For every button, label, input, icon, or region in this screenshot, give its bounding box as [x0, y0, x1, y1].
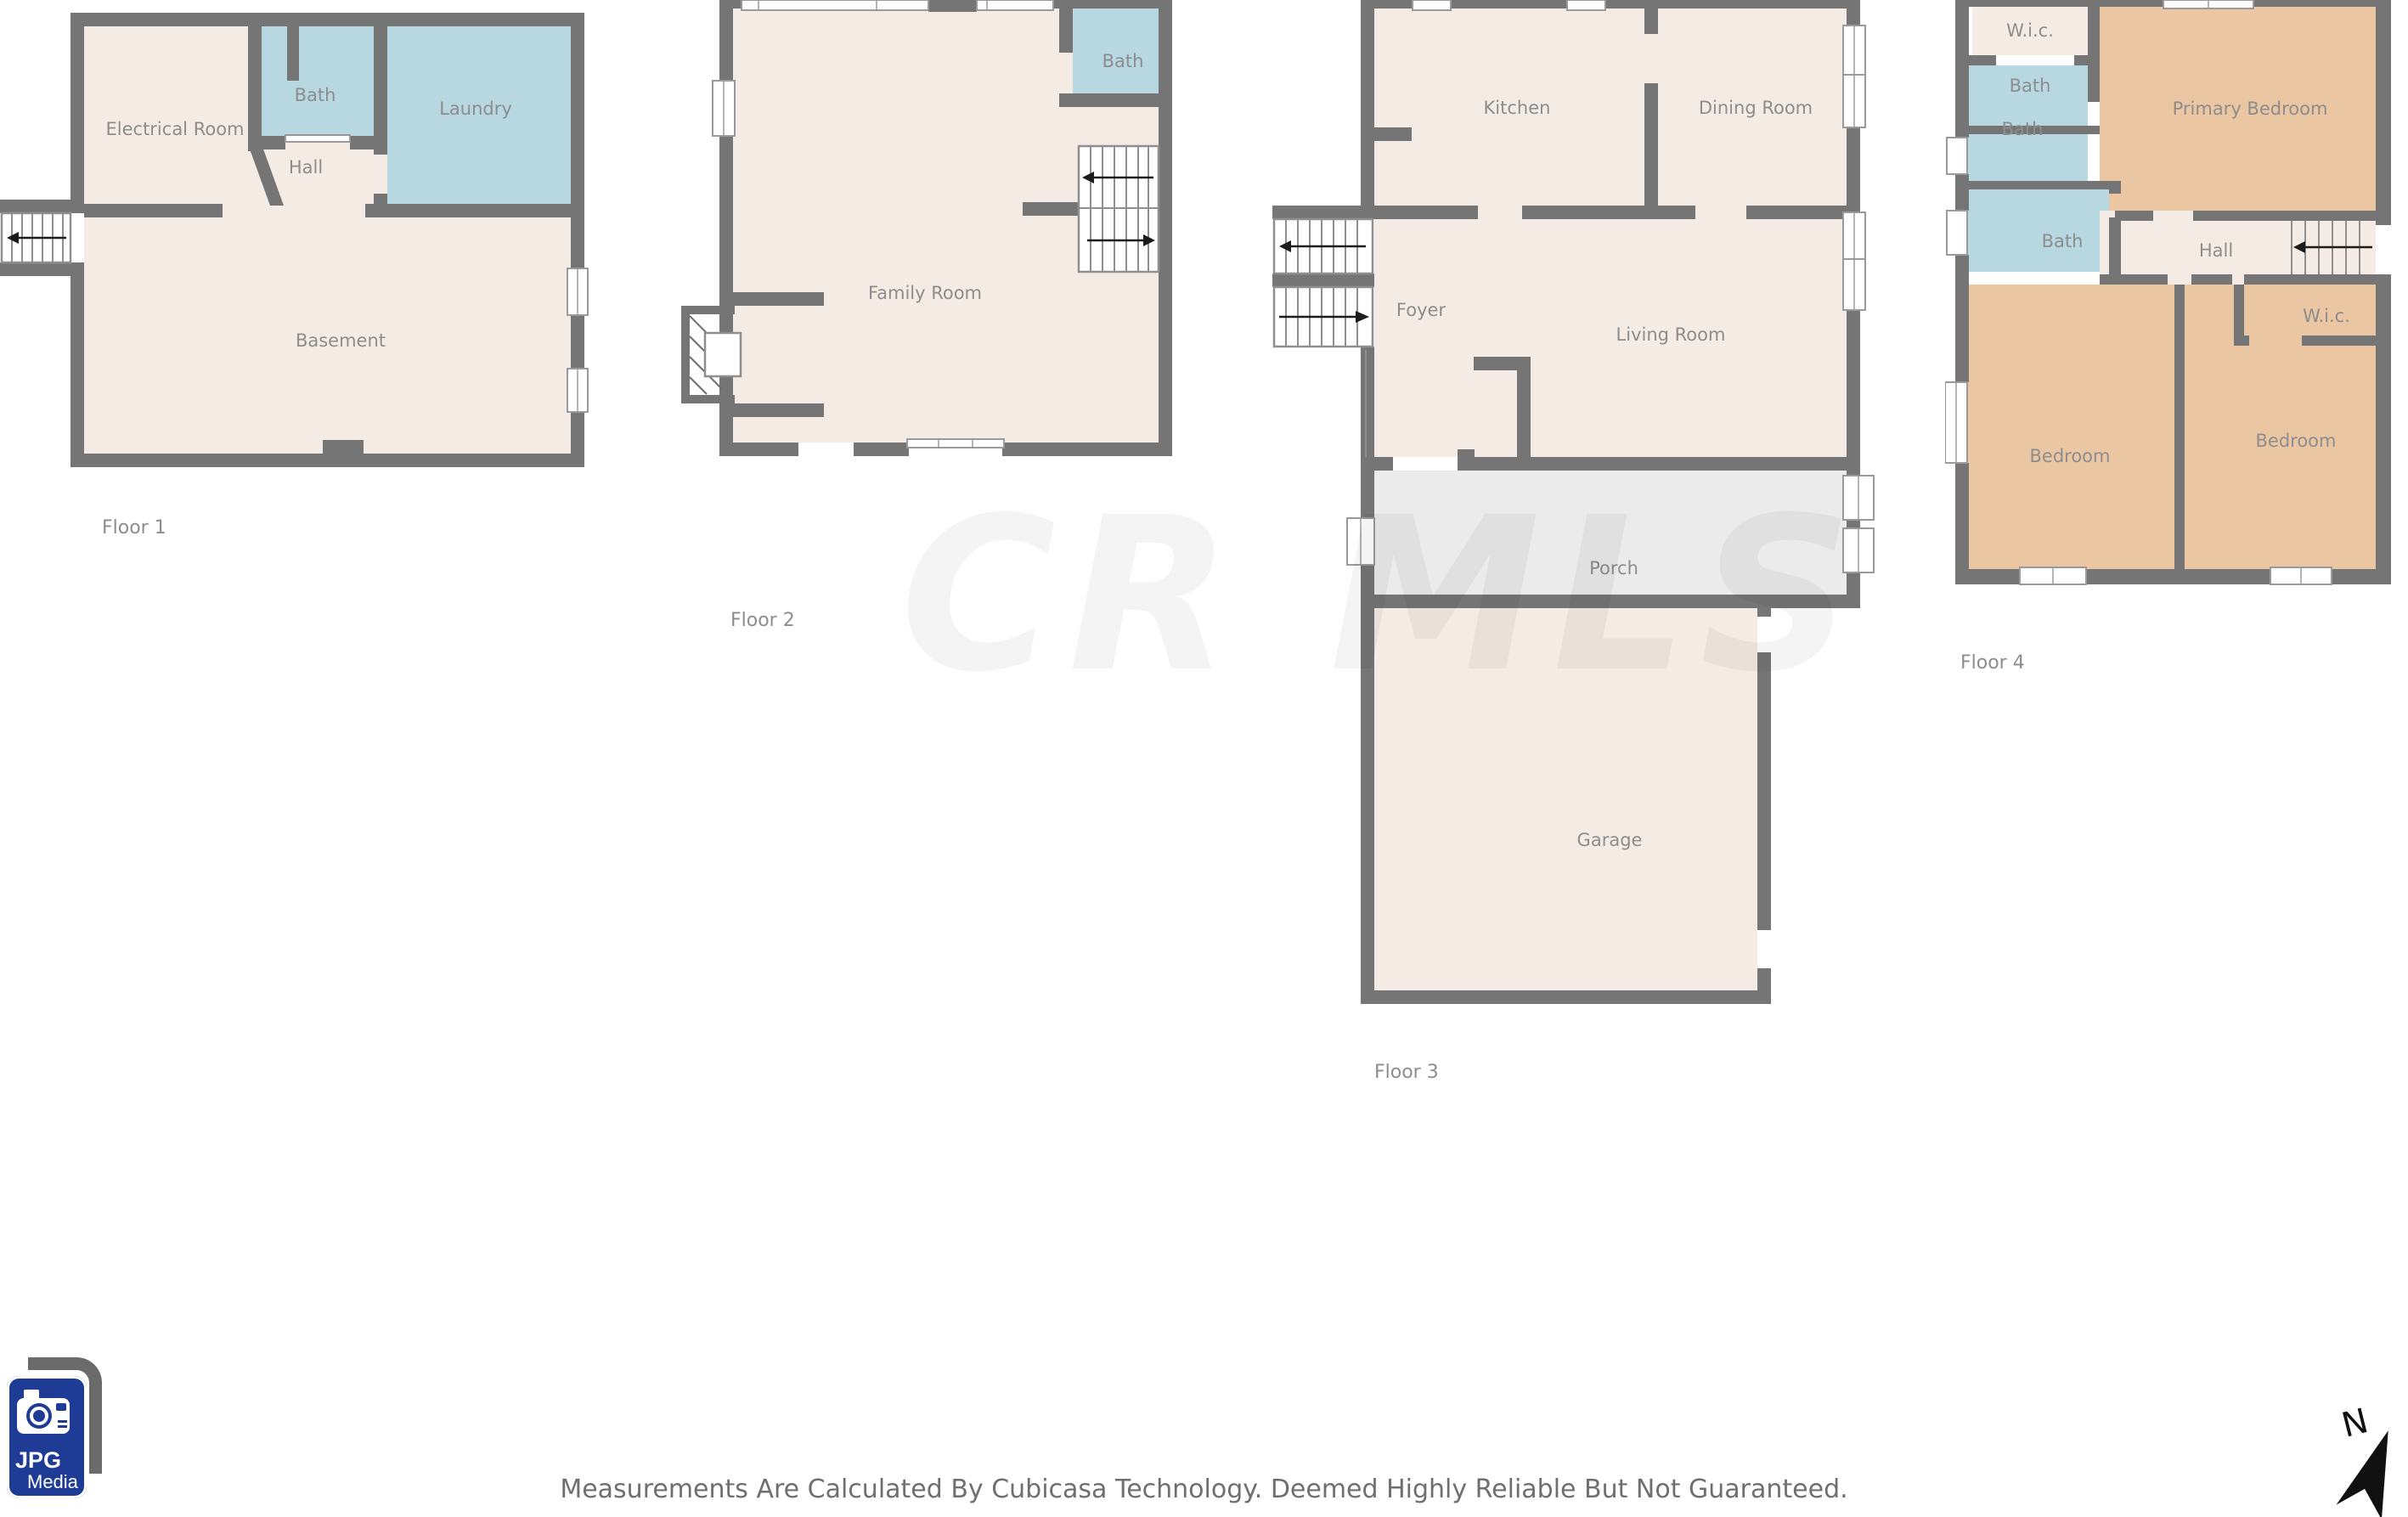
room-bath-3	[1966, 189, 2109, 272]
stairs	[1079, 146, 1159, 272]
room-label-laundry: Laundry	[439, 99, 512, 119]
room-bath-2	[1966, 134, 2088, 181]
room-label-basement: Basement	[296, 330, 386, 351]
room-label-family-room: Family Room	[868, 283, 982, 303]
room-label-bath-1: Bath	[2010, 76, 2051, 96]
room-label-bath: Bath	[295, 85, 336, 105]
room-label-wic-1: W.i.c.	[2006, 20, 2054, 41]
floor-label-1: Floor 1	[102, 517, 166, 539]
room-label-bedroom-left: Bedroom	[2030, 446, 2111, 466]
camera-icon	[7, 1376, 87, 1444]
room-label-electrical-room: Electrical Room	[106, 119, 245, 139]
logo-text-media: Media	[27, 1471, 78, 1493]
floorplan-page: Electrical Room Bath Laundry Hall Baseme…	[0, 0, 2408, 1517]
floor-label-3: Floor 3	[1374, 1062, 1439, 1083]
disclaimer-text: Measurements Are Calculated By Cubicasa …	[0, 1475, 2408, 1504]
floorplan-floor-3: Kitchen Dining Room Foyer Living Room Po…	[1266, 0, 1886, 1087]
room-label-bath: Bath	[1102, 51, 1144, 71]
floorplan-floor-1: Electrical Room Bath Laundry Hall Baseme…	[0, 0, 603, 561]
room-bath	[258, 26, 374, 136]
logo-card: JPG Media	[7, 1376, 87, 1498]
room-label-bedroom-right: Bedroom	[2256, 431, 2337, 451]
door-openings	[285, 135, 350, 142]
room-label-porch: Porch	[1589, 558, 1638, 578]
room-label-primary-bedroom: Primary Bedroom	[2173, 99, 2328, 119]
floor-label-4: Floor 4	[1960, 652, 2025, 674]
jpg-media-logo: JPG Media	[7, 1357, 105, 1503]
room-label-foyer: Foyer	[1396, 300, 1446, 320]
room-label-garage: Garage	[1577, 830, 1643, 850]
floorplan-floor-2: Bath Family Room Floor 2	[680, 0, 1189, 633]
room-bedroom-right	[2185, 285, 2376, 569]
north-label: N	[2338, 1401, 2371, 1446]
room-label-bath-2: Bath	[2002, 119, 2044, 139]
north-arrow-icon: N	[2317, 1391, 2408, 1517]
room-living-area	[1374, 8, 1847, 457]
floorplan-floor-4: W.i.c. Bath Bath Bath Primary Bedroom Ha…	[1945, 0, 2408, 680]
room-bedroom-left	[1966, 285, 2174, 569]
room-label-living-room: Living Room	[1616, 324, 1726, 345]
room-garage	[1374, 608, 1757, 990]
logo-text-jpg: JPG	[15, 1447, 61, 1474]
stairs	[2, 213, 70, 262]
room-label-dining-room: Dining Room	[1699, 98, 1813, 118]
room-label-bath-3: Bath	[2042, 231, 2084, 251]
floor-label-2: Floor 2	[730, 610, 795, 631]
stairs	[1274, 219, 1373, 457]
room-label-kitchen: Kitchen	[1484, 98, 1551, 118]
room-label-hall: Hall	[2199, 240, 2233, 261]
room-label-wic-2: W.i.c.	[2303, 306, 2350, 326]
room-label-hall: Hall	[289, 157, 323, 178]
